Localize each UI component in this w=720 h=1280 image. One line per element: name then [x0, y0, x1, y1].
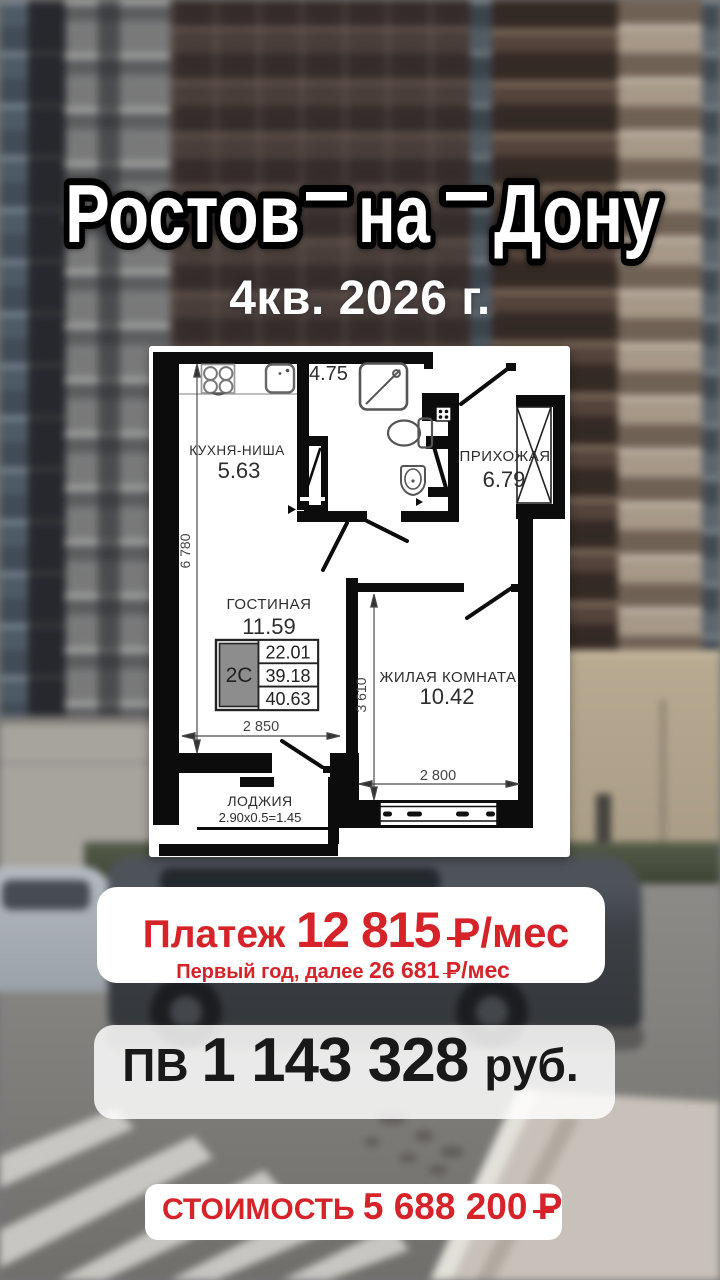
svg-text:4.75: 4.75 — [309, 363, 348, 385]
svg-text:ЛОДЖИЯ: ЛОДЖИЯ — [227, 793, 292, 809]
svg-text:Ростов: Ростов — [65, 167, 300, 260]
svg-text:22.01: 22.01 — [265, 643, 310, 663]
svg-text:39.18: 39.18 — [265, 666, 310, 686]
svg-text:КУХНЯ-НИША: КУХНЯ-НИША — [189, 443, 284, 458]
svg-text:2С: 2С — [226, 664, 253, 687]
svg-text:6.79: 6.79 — [483, 467, 526, 492]
svg-text:на: на — [358, 167, 431, 260]
svg-text:6 780: 6 780 — [177, 533, 193, 568]
svg-text:Дону: Дону — [494, 167, 660, 260]
svg-text:ПРИХОЖАЯ: ПРИХОЖАЯ — [459, 448, 550, 465]
svg-text:11.59: 11.59 — [242, 614, 295, 639]
svg-text:2 850: 2 850 — [243, 719, 279, 735]
svg-text:40.63: 40.63 — [265, 689, 310, 709]
svg-text:ГОСТИНАЯ: ГОСТИНАЯ — [227, 596, 312, 613]
svg-text:10.42: 10.42 — [419, 684, 474, 709]
svg-text:3 610: 3 610 — [353, 677, 369, 712]
svg-text:2.90х0.5=1.45: 2.90х0.5=1.45 — [219, 810, 302, 825]
svg-text:5.63: 5.63 — [218, 458, 261, 483]
svg-text:2 800: 2 800 — [420, 768, 456, 784]
